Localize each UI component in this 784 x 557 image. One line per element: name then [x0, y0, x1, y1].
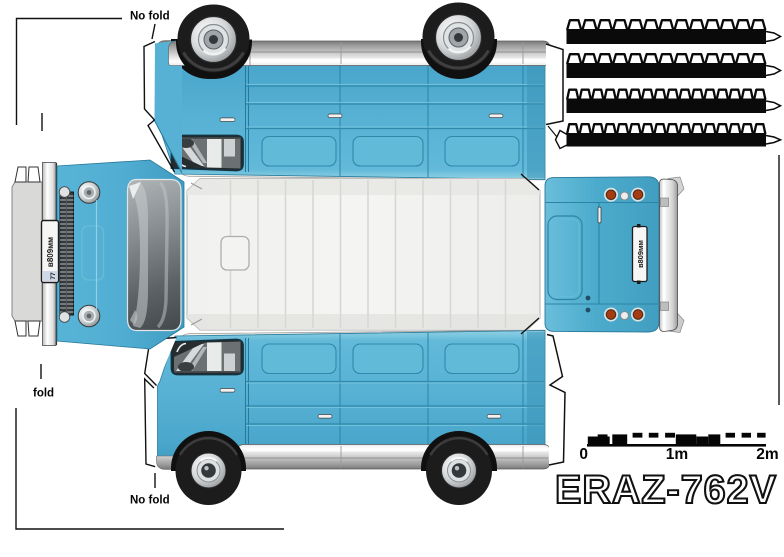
svg-text:ERAZ-762V: ERAZ-762V: [555, 468, 777, 512]
svg-text:2m: 2m: [756, 446, 778, 463]
svg-text:No fold: No fold: [130, 11, 170, 23]
svg-text:1m: 1m: [666, 446, 688, 463]
svg-text:fold: fold: [33, 388, 54, 400]
svg-text:0: 0: [579, 446, 588, 463]
svg-text:в809мм: в809мм: [636, 240, 645, 268]
svg-text:77: 77: [50, 272, 57, 280]
svg-text:No fold: No fold: [130, 495, 170, 507]
svg-text:в809мм: в809мм: [46, 237, 55, 267]
